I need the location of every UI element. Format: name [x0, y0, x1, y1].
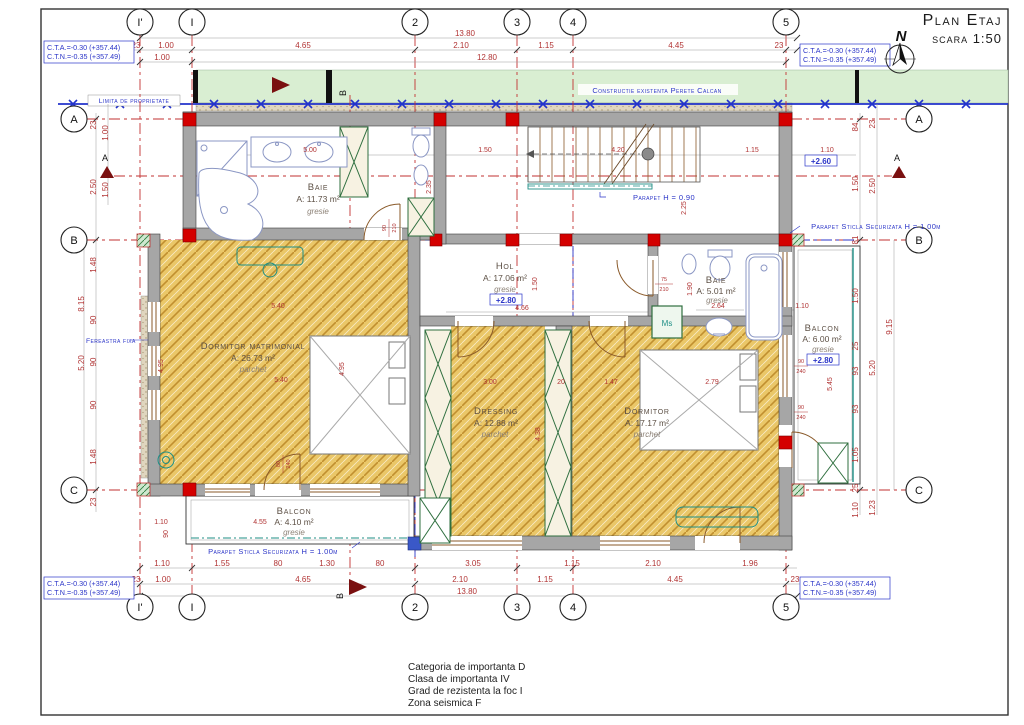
room-finish-balcon1: gresie [283, 528, 305, 537]
footer-line: Zona seismica F [408, 698, 481, 709]
north-label: N [896, 28, 908, 45]
dim-label: 90 [89, 315, 98, 324]
room-area-dormitor: A: 17.17 m² [625, 418, 669, 428]
footer-line: Grad de rezistenta la foc I [408, 686, 523, 697]
dim-label: 4.45 [667, 575, 683, 584]
room-area-baie2: A: 5.01 m² [696, 286, 735, 296]
dim-label: 1.23 [868, 500, 877, 516]
axis-col-label: 3 [514, 17, 520, 29]
room-area-hol: A: 17.06 m² [483, 273, 527, 283]
dim-label: 1.55 [214, 559, 230, 568]
dim-label: 1.15 [564, 559, 580, 568]
dim-label: 23 [89, 120, 98, 129]
dim-label: 1.48 [89, 257, 98, 273]
ctn-note: C.T.N.=-0.35 (+357.49) [803, 55, 877, 64]
stair-level: +2.60 [811, 157, 832, 166]
axis-row-label: A [915, 114, 923, 126]
dim-label: 90 [163, 530, 170, 538]
bed-matrimonial [310, 336, 410, 454]
dim-label: 4.55 [253, 519, 267, 526]
dim-label: 90 [382, 225, 388, 231]
ms-label: Ms [662, 319, 673, 328]
dim-label: 4.65 [295, 41, 311, 50]
dim-label: 4.95 [339, 362, 346, 376]
footer-line: Clasa de importanta IV [408, 674, 510, 685]
dim-label: 81 [851, 235, 860, 244]
dim-label: 1.15 [745, 147, 759, 154]
dim-label: 240 [796, 415, 805, 421]
dim-label: 5.40 [274, 377, 288, 384]
dim-label: 2.10 [452, 575, 468, 584]
dim-label: 12.80 [477, 53, 498, 62]
axis-col-label: 2 [412, 17, 418, 29]
bathtub [746, 254, 782, 340]
dim-label: 1.50 [851, 288, 860, 304]
dim-label: 240 [796, 369, 805, 375]
dim-label: 5.00 [303, 147, 317, 154]
room-area-dorm-mat: A: 26.73 m² [231, 353, 275, 363]
limita-label: Limita de proprietate [99, 98, 170, 105]
cta-note: C.T.A.=-0.30 (+357.44) [803, 579, 876, 588]
room-name-baie1: Baie [308, 182, 328, 193]
dim-label: 23 [775, 41, 784, 50]
axis-row-label: C [915, 485, 923, 497]
dim-label: 1.30 [319, 559, 335, 568]
section-a-label: A [894, 153, 900, 163]
calcan-label: Constructie existenta Perete Calcan [592, 86, 721, 95]
dim-label: 8.15 [77, 296, 86, 312]
dim-label: 80 [274, 559, 283, 568]
room-area-balcon1: A: 4.10 m² [274, 517, 313, 527]
dim-label: 1.50 [851, 176, 860, 192]
dim-label: 2.35 [426, 180, 433, 194]
dim-label: 1.00 [155, 575, 171, 584]
dim-label: 1.48 [89, 449, 98, 465]
axis-col-label: 5 [783, 17, 789, 29]
axis-col-label: 5 [783, 602, 789, 614]
room-name-baie2: Baie [706, 275, 726, 286]
room-finish-dressing: parchet [481, 430, 509, 439]
dim-label: 2.79 [705, 379, 719, 386]
axis-row-label: B [70, 235, 77, 247]
dim-label: 4.95 [158, 359, 165, 373]
dim-label: 23 [791, 575, 800, 584]
room-area-baie1: A: 11.73 m² [296, 194, 339, 204]
room-level-balcon2: +2.80 [813, 356, 834, 365]
axis-col-label: I [190, 17, 193, 29]
cta-note: C.T.A.=-0.30 (+357.44) [47, 43, 120, 52]
dim-label: 1.90 [687, 282, 694, 296]
dim-label: 1.00 [158, 41, 174, 50]
axis-col-label: 3 [514, 602, 520, 614]
dim-label: 240 [286, 459, 292, 468]
room-name-dorm-mat: Dormitor matrimonial [201, 341, 306, 352]
axis-row-label: A [70, 114, 78, 126]
dim-label: 4.66 [515, 305, 529, 312]
ctn-note: C.T.N.=-0.35 (+357.49) [47, 588, 121, 597]
axis-col-label: I' [137, 17, 142, 29]
dim-label: 93 [851, 404, 860, 413]
room-name-hol: Hol [496, 261, 514, 272]
parapet-stair-label: Parapet H = 0.90 [633, 193, 695, 202]
dim-label: 4.20 [611, 147, 625, 154]
plan-title: Plan Etaj [923, 12, 1002, 29]
dim-label: 5.40 [271, 303, 285, 310]
dim-label: 1.50 [101, 182, 110, 198]
axis-col-label: I [190, 602, 193, 614]
dim-label: 90 [89, 357, 98, 366]
parapet-glass-bottom-label: Parapet Sticla Securizata H = 1.00m [208, 547, 338, 556]
room-finish-dormitor: parchet [633, 430, 661, 439]
plan-scale: scara 1:50 [932, 31, 1002, 46]
dim-label: 25 [851, 483, 860, 492]
dim-label: 2.10 [645, 559, 661, 568]
dim-label: 1.15 [537, 575, 553, 584]
cta-note: C.T.A.=-0.30 (+357.44) [47, 579, 120, 588]
room-name-dressing: Dressing [474, 406, 518, 417]
dim-label: 4.65 [295, 575, 311, 584]
dim-label: 4.45 [668, 41, 684, 50]
axis-col-label: 4 [570, 17, 576, 29]
tub-drain [221, 207, 228, 214]
dim-label: 1.10 [154, 559, 170, 568]
dim-label: 75 [661, 277, 667, 283]
washing-machine: Ms [652, 306, 682, 338]
axis-col-label: 2 [412, 602, 418, 614]
dim-label: 90 [89, 400, 98, 409]
dim-label: 1.10 [795, 303, 809, 310]
dim-label: 13.80 [457, 587, 478, 596]
dim-label: 23 [89, 497, 98, 506]
dim-label: 5.20 [868, 360, 877, 376]
dim-label: 5.20 [77, 355, 86, 371]
parapet-glass-right-label: Parapet Sticla Securizata H = 1.00m [811, 222, 941, 231]
dim-label: 2.10 [453, 41, 469, 50]
dim-label: 93 [851, 366, 860, 375]
ctn-note: C.T.N.=-0.35 (+357.49) [803, 588, 877, 597]
room-name-balcon1: Balcon [277, 506, 312, 517]
dim-label: 1.05 [851, 447, 860, 463]
section-b-label: B [335, 593, 345, 599]
dim-label: 1.96 [742, 559, 758, 568]
section-a-label: A [102, 153, 108, 163]
double-sink [251, 137, 347, 167]
room-finish-baie1: gresie [307, 207, 329, 216]
dim-label: 3.05 [465, 559, 481, 568]
axis-col-label: 4 [570, 602, 576, 614]
fereastra-fixa-label: Fereastra fixa [86, 338, 136, 345]
room-finish-balcon2: gresie [812, 345, 834, 354]
dim-label: 1.10 [851, 502, 860, 518]
room-finish-hol: gresie [494, 285, 516, 294]
dim-label: 84 [851, 122, 860, 131]
dim-label: 9.15 [885, 319, 894, 335]
dim-label: 80 [376, 559, 385, 568]
dim-label: 90 [798, 405, 804, 411]
section-b-label: B [338, 90, 348, 96]
dim-label: 1.50 [478, 147, 492, 154]
dim-label: 2.25 [681, 201, 688, 215]
dim-label: 1.10 [154, 519, 168, 526]
dim-label: 13.80 [455, 29, 476, 38]
axis-row-label: B [915, 235, 922, 247]
dim-label: 2.50 [89, 179, 98, 195]
cta-note: C.T.A.=-0.30 (+357.44) [803, 46, 876, 55]
dim-label: 1.00 [101, 125, 110, 141]
dim-label: 1.47 [604, 379, 618, 386]
dim-label: 1.10 [820, 147, 834, 154]
site-band: Limita de proprietate Constructie existe… [58, 70, 1008, 111]
footer-line: Categoria de importanta D [408, 662, 525, 673]
axis-col-label: I' [137, 602, 142, 614]
dim-label: 2.64 [711, 303, 725, 310]
room-area-dressing: A: 12.88 m² [474, 418, 518, 428]
sink [706, 318, 732, 336]
dim-label: 1.50 [532, 277, 539, 291]
floor-plan-svg: Limita de proprietate Constructie existe… [0, 0, 1024, 725]
room-area-balcon2: A: 6.00 m² [802, 334, 841, 344]
dim-label: 4.38 [535, 427, 542, 441]
dim-label: 210 [392, 223, 398, 232]
dim-label: 90 [798, 359, 804, 365]
dim-label: 1.15 [538, 41, 554, 50]
room-level-hol: +2.80 [496, 296, 517, 305]
dim-label: 20 [557, 379, 565, 386]
dim-label: 1.00 [154, 53, 170, 62]
dim-label: 3.00 [483, 379, 497, 386]
axis-row-label: C [70, 485, 78, 497]
room-name-dormitor: Dormitor [624, 406, 669, 417]
ctn-note: C.T.N.=-0.35 (+357.49) [47, 52, 121, 61]
room-finish-dorm-mat: parchet [239, 365, 267, 374]
dim-label: 2.50 [868, 178, 877, 194]
dim-label: 5.45 [827, 377, 834, 391]
room-name-balcon2: Balcon [805, 323, 840, 334]
dim-label: 210 [659, 287, 668, 293]
dim-label: 23 [868, 119, 877, 128]
floor-plan-page: Limita de proprietate Constructie existe… [0, 0, 1024, 725]
dim-label: 25 [851, 341, 860, 350]
bidet [682, 254, 696, 274]
dim-label: 80 [276, 461, 282, 467]
